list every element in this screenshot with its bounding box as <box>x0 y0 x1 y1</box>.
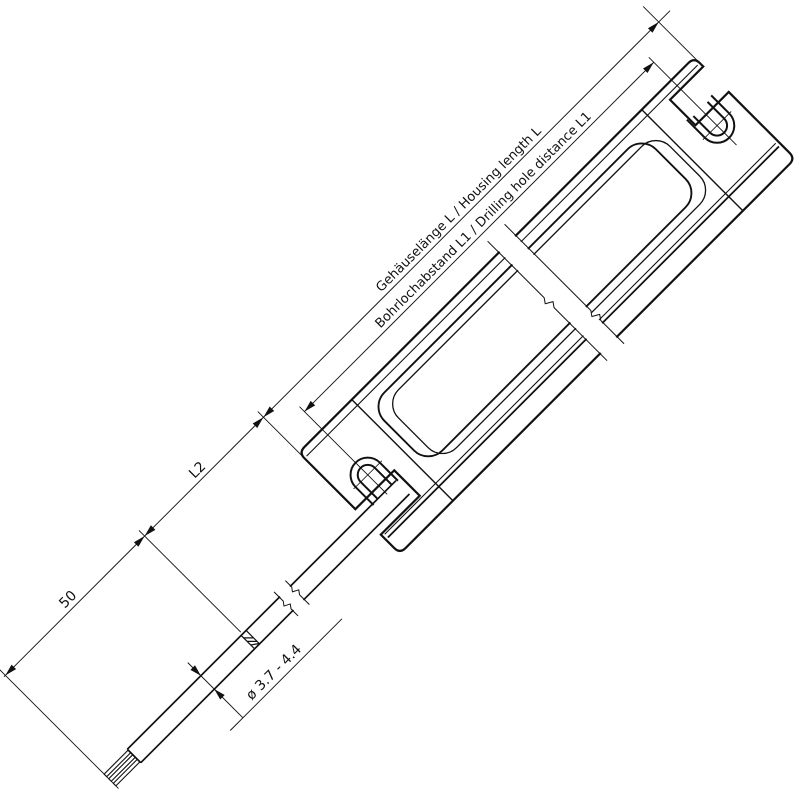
housing <box>299 57 795 553</box>
dim-label-cable-section: L2 <box>186 459 209 482</box>
cable-jacket <box>127 481 409 763</box>
housing-outline <box>299 57 795 553</box>
cable <box>103 481 409 787</box>
ext-line-junction <box>139 530 241 632</box>
housing-break-gap <box>494 231 622 359</box>
dimensions: 50 L2 Gehäuselänge L / Housing length L … <box>0 0 800 800</box>
housing-top-seam <box>307 65 698 456</box>
endcap-near-joint <box>352 400 453 501</box>
ext-line-cable-tip <box>0 670 118 789</box>
technical-drawing: 50 L2 Gehäuselänge L / Housing length L … <box>0 0 800 800</box>
dim-line-l1 <box>304 62 653 411</box>
housing-bottom-seam <box>385 143 776 534</box>
ext-line-housing-far <box>643 6 702 65</box>
dim-label-strip-length: 50 <box>56 588 80 612</box>
technical-drawing-page: 50 L2 Gehäuselänge L / Housing length L … <box>0 0 800 800</box>
ext-line-housing-near <box>258 412 307 461</box>
dim-shelf-diameter <box>230 619 342 731</box>
dim-line-chain <box>4 11 670 677</box>
cover-plate-outer <box>370 135 700 465</box>
